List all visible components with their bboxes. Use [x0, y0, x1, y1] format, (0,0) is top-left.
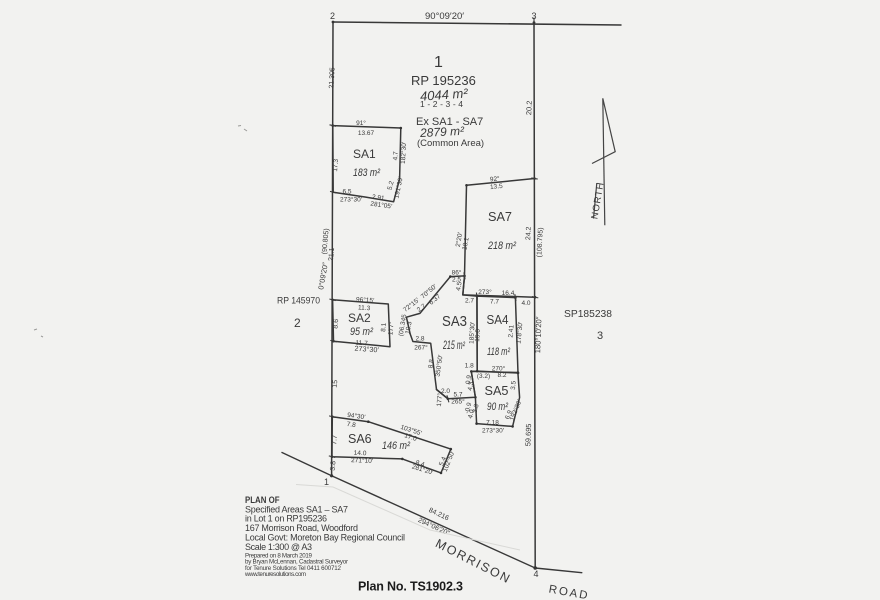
svg-text:2: 2: [330, 11, 335, 21]
svg-text:8.8: 8.8: [427, 358, 435, 368]
svg-text:(3.2): (3.2): [477, 373, 490, 380]
svg-text:91°: 91°: [356, 119, 366, 127]
svg-text:267°: 267°: [414, 344, 428, 352]
svg-text:273°30′: 273°30′: [482, 427, 505, 435]
svg-text:4: 4: [534, 569, 539, 579]
svg-text:SA7: SA7: [488, 209, 512, 224]
svg-text:182°30′: 182°30′: [399, 141, 408, 164]
svg-text:18.1: 18.1: [461, 237, 470, 251]
svg-text:RP 145970: RP 145970: [277, 296, 320, 307]
svg-text:15.0: 15.0: [474, 329, 482, 342]
svg-text:SA2: SA2: [348, 311, 371, 325]
svg-text:SA3: SA3: [442, 314, 467, 330]
svg-text:13.5: 13.5: [490, 183, 504, 191]
svg-text:ROAD: ROAD: [548, 584, 591, 600]
svg-text:17.3: 17.3: [332, 158, 340, 172]
svg-text:Local Govt: Moreton Bay Regio: Local Govt: Moreton Bay Regional Council: [245, 532, 405, 542]
svg-text:8.2: 8.2: [497, 372, 506, 379]
svg-text:20.2: 20.2: [524, 100, 534, 115]
svg-text:13.67: 13.67: [358, 130, 375, 137]
svg-text:177°: 177°: [386, 321, 395, 335]
svg-text:215 m²: 215 m²: [442, 340, 465, 352]
svg-text:21.305: 21.305: [328, 67, 336, 89]
svg-text:(Common Area): (Common Area): [417, 138, 484, 149]
svg-text:7.8: 7.8: [346, 421, 356, 429]
svg-text:59.695: 59.695: [523, 423, 533, 446]
svg-text:7.7: 7.7: [331, 435, 339, 445]
svg-text:167 Morrison Road, Woodford: 167 Morrison Road, Woodford: [245, 523, 358, 533]
svg-text:95 m²: 95 m²: [350, 326, 373, 338]
svg-text:7.7: 7.7: [490, 299, 499, 306]
svg-text:(108.795): (108.795): [536, 227, 545, 257]
svg-text:118 m²: 118 m²: [487, 346, 510, 358]
svg-text:96°15′: 96°15′: [356, 295, 376, 304]
svg-text:86°: 86°: [452, 269, 462, 277]
svg-text:180°10′20″: 180°10′20″: [533, 316, 543, 353]
svg-text:92°: 92°: [489, 174, 500, 183]
svg-text:15: 15: [332, 380, 340, 388]
svg-text:4.5: 4.5: [455, 281, 464, 291]
svg-text:3.8: 3.8: [330, 461, 338, 471]
svg-text:6.5: 6.5: [342, 189, 351, 196]
svg-text:5.7: 5.7: [453, 392, 462, 399]
svg-text:www.tenuresolutions.com: www.tenuresolutions.com: [244, 571, 306, 578]
svg-text:273°30′: 273°30′: [340, 196, 363, 204]
svg-text:273°30′: 273°30′: [354, 344, 379, 355]
svg-text:11.3: 11.3: [358, 304, 371, 312]
svg-text:8.6: 8.6: [332, 319, 340, 329]
svg-text:4.7: 4.7: [392, 151, 399, 161]
svg-text:177°: 177°: [435, 392, 444, 406]
svg-text:21.1: 21.1: [328, 247, 336, 261]
svg-text:2.7: 2.7: [465, 297, 474, 304]
svg-text:1.8: 1.8: [465, 363, 474, 370]
svg-text:7.18: 7.18: [486, 420, 499, 427]
svg-text:3.3: 3.3: [471, 403, 480, 414]
svg-text:10.3: 10.3: [404, 321, 413, 335]
svg-text:2: 2: [294, 316, 301, 330]
svg-text:3.5: 3.5: [510, 380, 518, 390]
svg-text:218 m²: 218 m²: [487, 240, 516, 252]
svg-text:146 m²: 146 m²: [382, 440, 410, 452]
svg-text:24.2: 24.2: [525, 226, 533, 240]
svg-text:SP185238: SP185238: [564, 309, 612, 320]
svg-text:90°09′20′: 90°09′20′: [425, 11, 464, 22]
svg-text:273°: 273°: [478, 288, 492, 296]
svg-text:0°09′20″: 0°09′20″: [316, 261, 330, 290]
svg-text:1: 1: [324, 477, 329, 487]
svg-text:Plan No. TS1902.3: Plan No. TS1902.3: [358, 580, 463, 594]
svg-text:SA1: SA1: [353, 147, 376, 161]
svg-text:4.0: 4.0: [521, 300, 530, 307]
svg-text:8.1: 8.1: [380, 322, 388, 332]
svg-text:16.4: 16.4: [502, 290, 515, 297]
svg-text:SA4: SA4: [487, 312, 509, 327]
svg-text:350°50′: 350°50′: [434, 354, 445, 378]
svg-text:2.8: 2.8: [415, 336, 424, 343]
svg-text:265°: 265°: [451, 398, 465, 406]
svg-text:SA6: SA6: [348, 432, 372, 446]
svg-text:Scale 1:300 @ A3: Scale 1:300 @ A3: [245, 542, 312, 552]
svg-text:2.41: 2.41: [507, 324, 515, 338]
svg-text:90 m²: 90 m²: [487, 401, 508, 413]
svg-text:1: 1: [434, 54, 443, 71]
svg-text:14.0: 14.0: [354, 450, 367, 457]
svg-text:271°10′: 271°10′: [351, 456, 374, 465]
svg-text:3: 3: [597, 330, 603, 342]
svg-text:SA5: SA5: [485, 384, 509, 398]
svg-text:1-2-3-4: 1-2-3-4: [420, 99, 466, 109]
svg-text:183 m²: 183 m²: [353, 167, 380, 179]
